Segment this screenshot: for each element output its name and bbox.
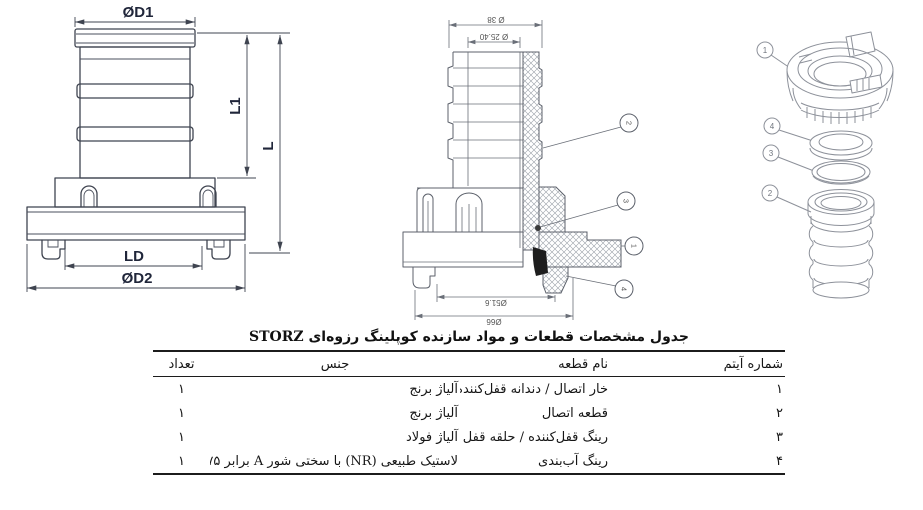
o-ring-section [535,225,541,231]
callout-1: 1 [763,46,768,55]
dim-label-l1: L1 [227,97,244,115]
dim-label-66: Ø66 [486,317,502,326]
table-row: ۲ قطعه اتصال آلیاژ برنج ۱ [153,401,785,425]
callout-3: 3 [621,199,630,203]
cell-quantity: ۱ [153,401,210,425]
dimension-d1: ØD1 [75,4,195,27]
cell-quantity: ۱ [153,377,210,402]
section-view-drawing: Ø 38 Ø 25.40 Ø51.6 Ø66 2 3 [390,0,660,332]
callout-1: 1 [629,244,638,248]
cell-item-number: ۳ [610,425,785,449]
cell-item-number: ۲ [610,401,785,425]
front-view-drawing: ØD1 L1 L LD ØD2 [10,0,310,300]
section-body [403,187,621,293]
exploded-shank [808,190,874,299]
dim-label-d1: ØD1 [123,4,154,21]
table-row: ۱ خار اتصال / دندانه قفل‌کننده آلیاژ برن… [153,377,785,402]
cell-quantity: ۱ [153,449,210,474]
exploded-view-drawing: 1 4 3 2 [713,0,918,310]
coupling-collar [55,178,216,207]
table-row: ۳ رینگ قفل‌کننده / حلقه قفل آلیاژ فولاد … [153,425,785,449]
cell-material: لاستیک طبیعی (NR) با سختی شور A برابر ۷۵… [210,449,460,474]
dim-label-51-6: Ø51.6 [485,298,507,307]
section-dim-bottom-inner: Ø51.6 [437,284,555,307]
cell-item-number: ۱ [610,377,785,402]
cell-material: آلیاژ فولاد [210,425,460,449]
hose-shank [75,29,195,178]
callout-3: 3 [769,149,774,158]
section-dim-top-outer: Ø 38 [449,15,542,48]
table-header-row: شماره آیتم نام قطعه جنس تعداد [153,351,785,377]
table-row: ۴ رینگ آب‌بندی لاستیک طبیعی (NR) با سختی… [153,449,785,474]
dim-label-38: Ø 38 [487,15,505,24]
exploded-callouts: 1 4 3 2 [757,42,780,201]
dimension-l: L [249,35,290,253]
col-header-item-number: شماره آیتم [610,351,785,377]
cell-part-name: قطعه اتصال [460,401,610,425]
dim-label-ld: LD [124,248,144,265]
seal-ring-section [533,247,548,276]
callout-4: 4 [770,122,775,131]
callout-2: 2 [768,189,773,198]
cell-quantity: ۱ [153,425,210,449]
dimension-l1: L1 [197,33,290,178]
dim-label-l: L [260,141,277,150]
dimension-ld: LD [65,246,202,270]
callout-2: 2 [624,121,633,125]
cell-part-name: رینگ آب‌بندی [460,449,610,474]
cell-part-name: رینگ قفل‌کننده / حلقه قفل [460,425,610,449]
exploded-head [787,32,893,124]
col-header-part-name: نام قطعه [460,351,610,377]
callout-4: 4 [619,287,628,291]
cell-material: آلیاژ برنج [210,401,460,425]
exploded-seal-ring [810,131,872,160]
col-header-quantity: تعداد [153,351,210,377]
dim-label-d2: ØD2 [122,270,153,287]
exploded-o-ring [812,161,870,184]
section-dim-top-inner: Ø 25.40 [468,32,520,48]
cell-part-name: خار اتصال / دندانه قفل‌کننده [460,377,610,402]
parts-spec-table: شماره آیتم نام قطعه جنس تعداد ۱ خار اتصا… [153,350,785,475]
table-title: جدول مشخصات قطعات و مواد سازنده کوپلینگ … [153,329,785,345]
dim-label-25-40: Ø 25.40 [479,32,508,41]
document-page: ØD1 L1 L LD ØD2 [0,0,923,510]
col-header-material: جنس [210,351,460,377]
cell-item-number: ۴ [610,449,785,474]
cell-material: آلیاژ برنج [210,377,460,402]
